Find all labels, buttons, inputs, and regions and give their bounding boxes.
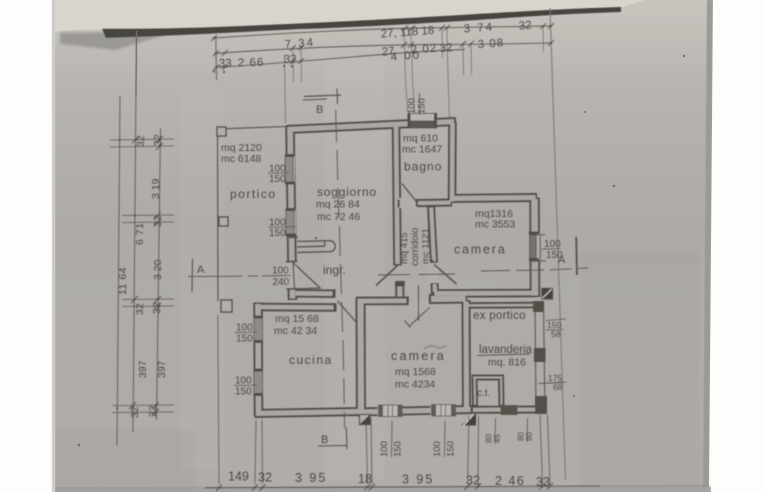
svg-text:149: 149 — [228, 470, 249, 484]
svg-text:3 08: 3 08 — [477, 37, 504, 51]
svg-text:2 46: 2 46 — [495, 474, 525, 488]
svg-text:150: 150 — [269, 228, 286, 239]
svg-text:32: 32 — [152, 134, 164, 146]
svg-text:32: 32 — [258, 471, 272, 485]
svg-text:mc 1121: mc 1121 — [421, 228, 432, 264]
svg-text:32: 32 — [439, 42, 453, 55]
svg-text:150: 150 — [236, 334, 253, 345]
svg-text:33: 33 — [219, 58, 232, 70]
svg-text:mq 1568: mq 1568 — [395, 366, 436, 378]
svg-text:240: 240 — [273, 277, 290, 288]
svg-text:33: 33 — [536, 475, 550, 489]
svg-text:2 66: 2 66 — [238, 57, 265, 70]
svg-text:mq 415: mq 415 — [399, 232, 410, 264]
svg-text:A: A — [558, 254, 566, 266]
svg-text:100: 100 — [432, 441, 443, 457]
svg-text:mc 72 46: mc 72 46 — [317, 211, 360, 223]
svg-text:6 71: 6 71 — [134, 223, 146, 245]
svg-text:3 74: 3 74 — [463, 21, 494, 35]
svg-text:4 00: 4 00 — [390, 49, 421, 63]
svg-text:32: 32 — [134, 303, 146, 315]
svg-text:32: 32 — [135, 135, 147, 147]
svg-text:cucina: cucina — [289, 353, 333, 367]
svg-text:68: 68 — [553, 382, 563, 392]
svg-text:3 19: 3 19 — [150, 178, 162, 199]
svg-text:corridoio: corridoio — [410, 227, 421, 266]
svg-text:mc 4234: mc 4234 — [395, 379, 435, 391]
svg-text:B: B — [316, 104, 323, 116]
svg-text:150: 150 — [446, 441, 457, 457]
svg-text:150: 150 — [269, 174, 286, 185]
svg-text:80: 80 — [525, 432, 534, 441]
svg-text:32: 32 — [284, 53, 297, 66]
svg-text:ingr.: ingr. — [323, 263, 346, 277]
svg-text:32: 32 — [152, 215, 164, 227]
svg-text:mq 26 84: mq 26 84 — [316, 199, 360, 211]
svg-text:mc 1647: mc 1647 — [402, 144, 442, 156]
svg-text:3 95: 3 95 — [295, 471, 327, 485]
svg-text:7 34: 7 34 — [284, 37, 315, 51]
svg-text:58: 58 — [551, 329, 561, 339]
svg-text:32: 32 — [129, 406, 141, 418]
svg-text:bagno: bagno — [404, 160, 442, 174]
svg-text:B: B — [321, 434, 328, 446]
svg-text:11 64: 11 64 — [117, 267, 129, 295]
svg-text:397: 397 — [137, 360, 149, 378]
svg-text:32: 32 — [147, 405, 159, 417]
svg-text:soggiorno: soggiorno — [317, 185, 377, 199]
svg-text:mq. 816: mq. 816 — [488, 357, 526, 369]
svg-text:mc 3553: mc 3553 — [475, 219, 515, 231]
svg-text:camera: camera — [391, 349, 446, 363]
svg-text:100: 100 — [235, 376, 252, 387]
svg-text:32: 32 — [518, 20, 532, 33]
svg-text:45: 45 — [493, 434, 502, 443]
svg-text:mq 15 68: mq 15 68 — [275, 313, 319, 325]
svg-text:150: 150 — [235, 387, 252, 398]
svg-text:32: 32 — [466, 474, 480, 488]
svg-text:3 95: 3 95 — [402, 473, 434, 487]
svg-text:mc 42 34: mc 42 34 — [274, 325, 317, 337]
svg-text:portico: portico — [230, 187, 277, 201]
svg-text:mc 6148: mc 6148 — [221, 153, 261, 165]
svg-text:100: 100 — [379, 441, 390, 457]
svg-text:150: 150 — [393, 441, 404, 457]
svg-text:A: A — [197, 264, 205, 276]
svg-text:32: 32 — [151, 302, 163, 314]
svg-text:150: 150 — [417, 98, 428, 114]
svg-text:100: 100 — [272, 266, 289, 277]
svg-text:ex portico: ex portico — [473, 310, 526, 322]
svg-text:3 20: 3 20 — [152, 259, 164, 280]
svg-text:c.t.: c.t. — [477, 388, 490, 399]
svg-text:18: 18 — [358, 472, 372, 486]
svg-text:camera: camera — [454, 243, 506, 257]
svg-text:397: 397 — [156, 360, 168, 378]
